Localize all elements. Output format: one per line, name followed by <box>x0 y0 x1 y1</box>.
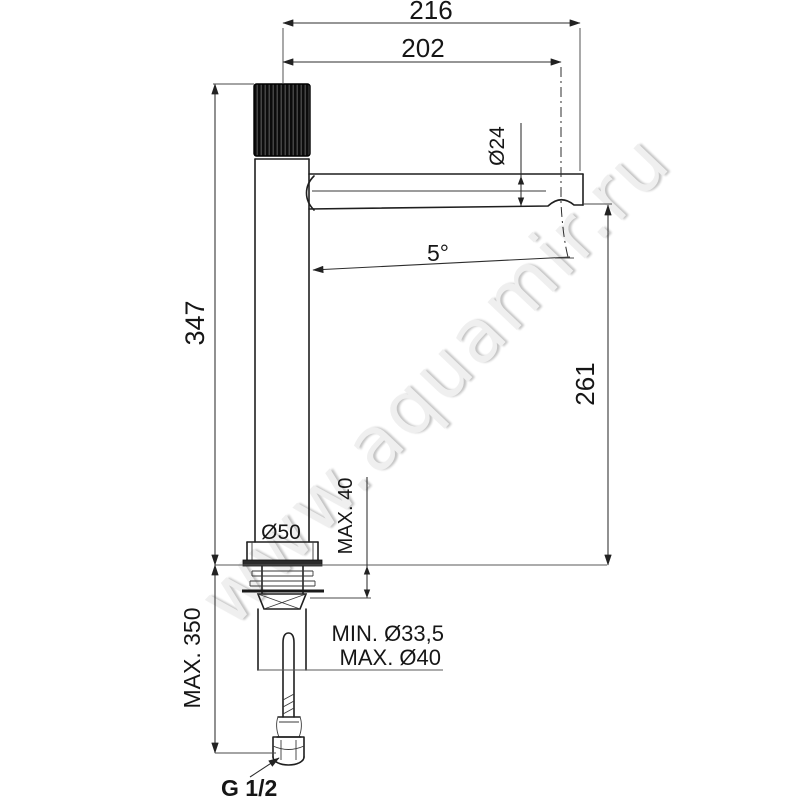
base-flange <box>243 542 322 566</box>
hose-collar <box>277 717 302 737</box>
dim-216-label: 216 <box>409 0 452 25</box>
dim-202-label: 202 <box>401 33 444 63</box>
hole-max-label: MAX. Ø40 <box>340 645 441 670</box>
deck-thickness-label: MAX. 40 <box>335 478 357 555</box>
drawing-canvas: www.aquamir.ru <box>0 0 800 800</box>
washer-lower <box>250 581 315 586</box>
base-diameter-label: Ø50 <box>261 521 301 544</box>
faucet-technical-drawing: 216 202 Ø24 5° 347 261 Ø50 MAX. 40 MAX. … <box>0 0 800 800</box>
below-deck-label: MAX. 350 <box>179 608 205 709</box>
dim-261-label: 261 <box>570 362 600 405</box>
thread-label: G 1/2 <box>221 775 277 800</box>
washer-upper <box>252 571 313 576</box>
dim-202 <box>283 62 568 257</box>
supply-hose <box>277 633 302 737</box>
dim-angle-label: 5° <box>427 240 449 266</box>
dim-347-label: 347 <box>180 300 210 345</box>
hole-min-label: MIN. Ø33,5 <box>332 621 444 646</box>
faucet-spout <box>307 174 584 210</box>
dim-347 <box>213 84 254 565</box>
dim-o24-label: Ø24 <box>486 126 509 166</box>
faucet-body <box>255 159 309 542</box>
outlet-axis-line <box>561 67 568 257</box>
hose-nut <box>273 737 304 765</box>
hose-braid-hatch <box>283 694 294 714</box>
dim-o24 <box>518 123 524 206</box>
faucet-handle <box>254 84 310 156</box>
spout-body-fillet <box>307 176 315 210</box>
